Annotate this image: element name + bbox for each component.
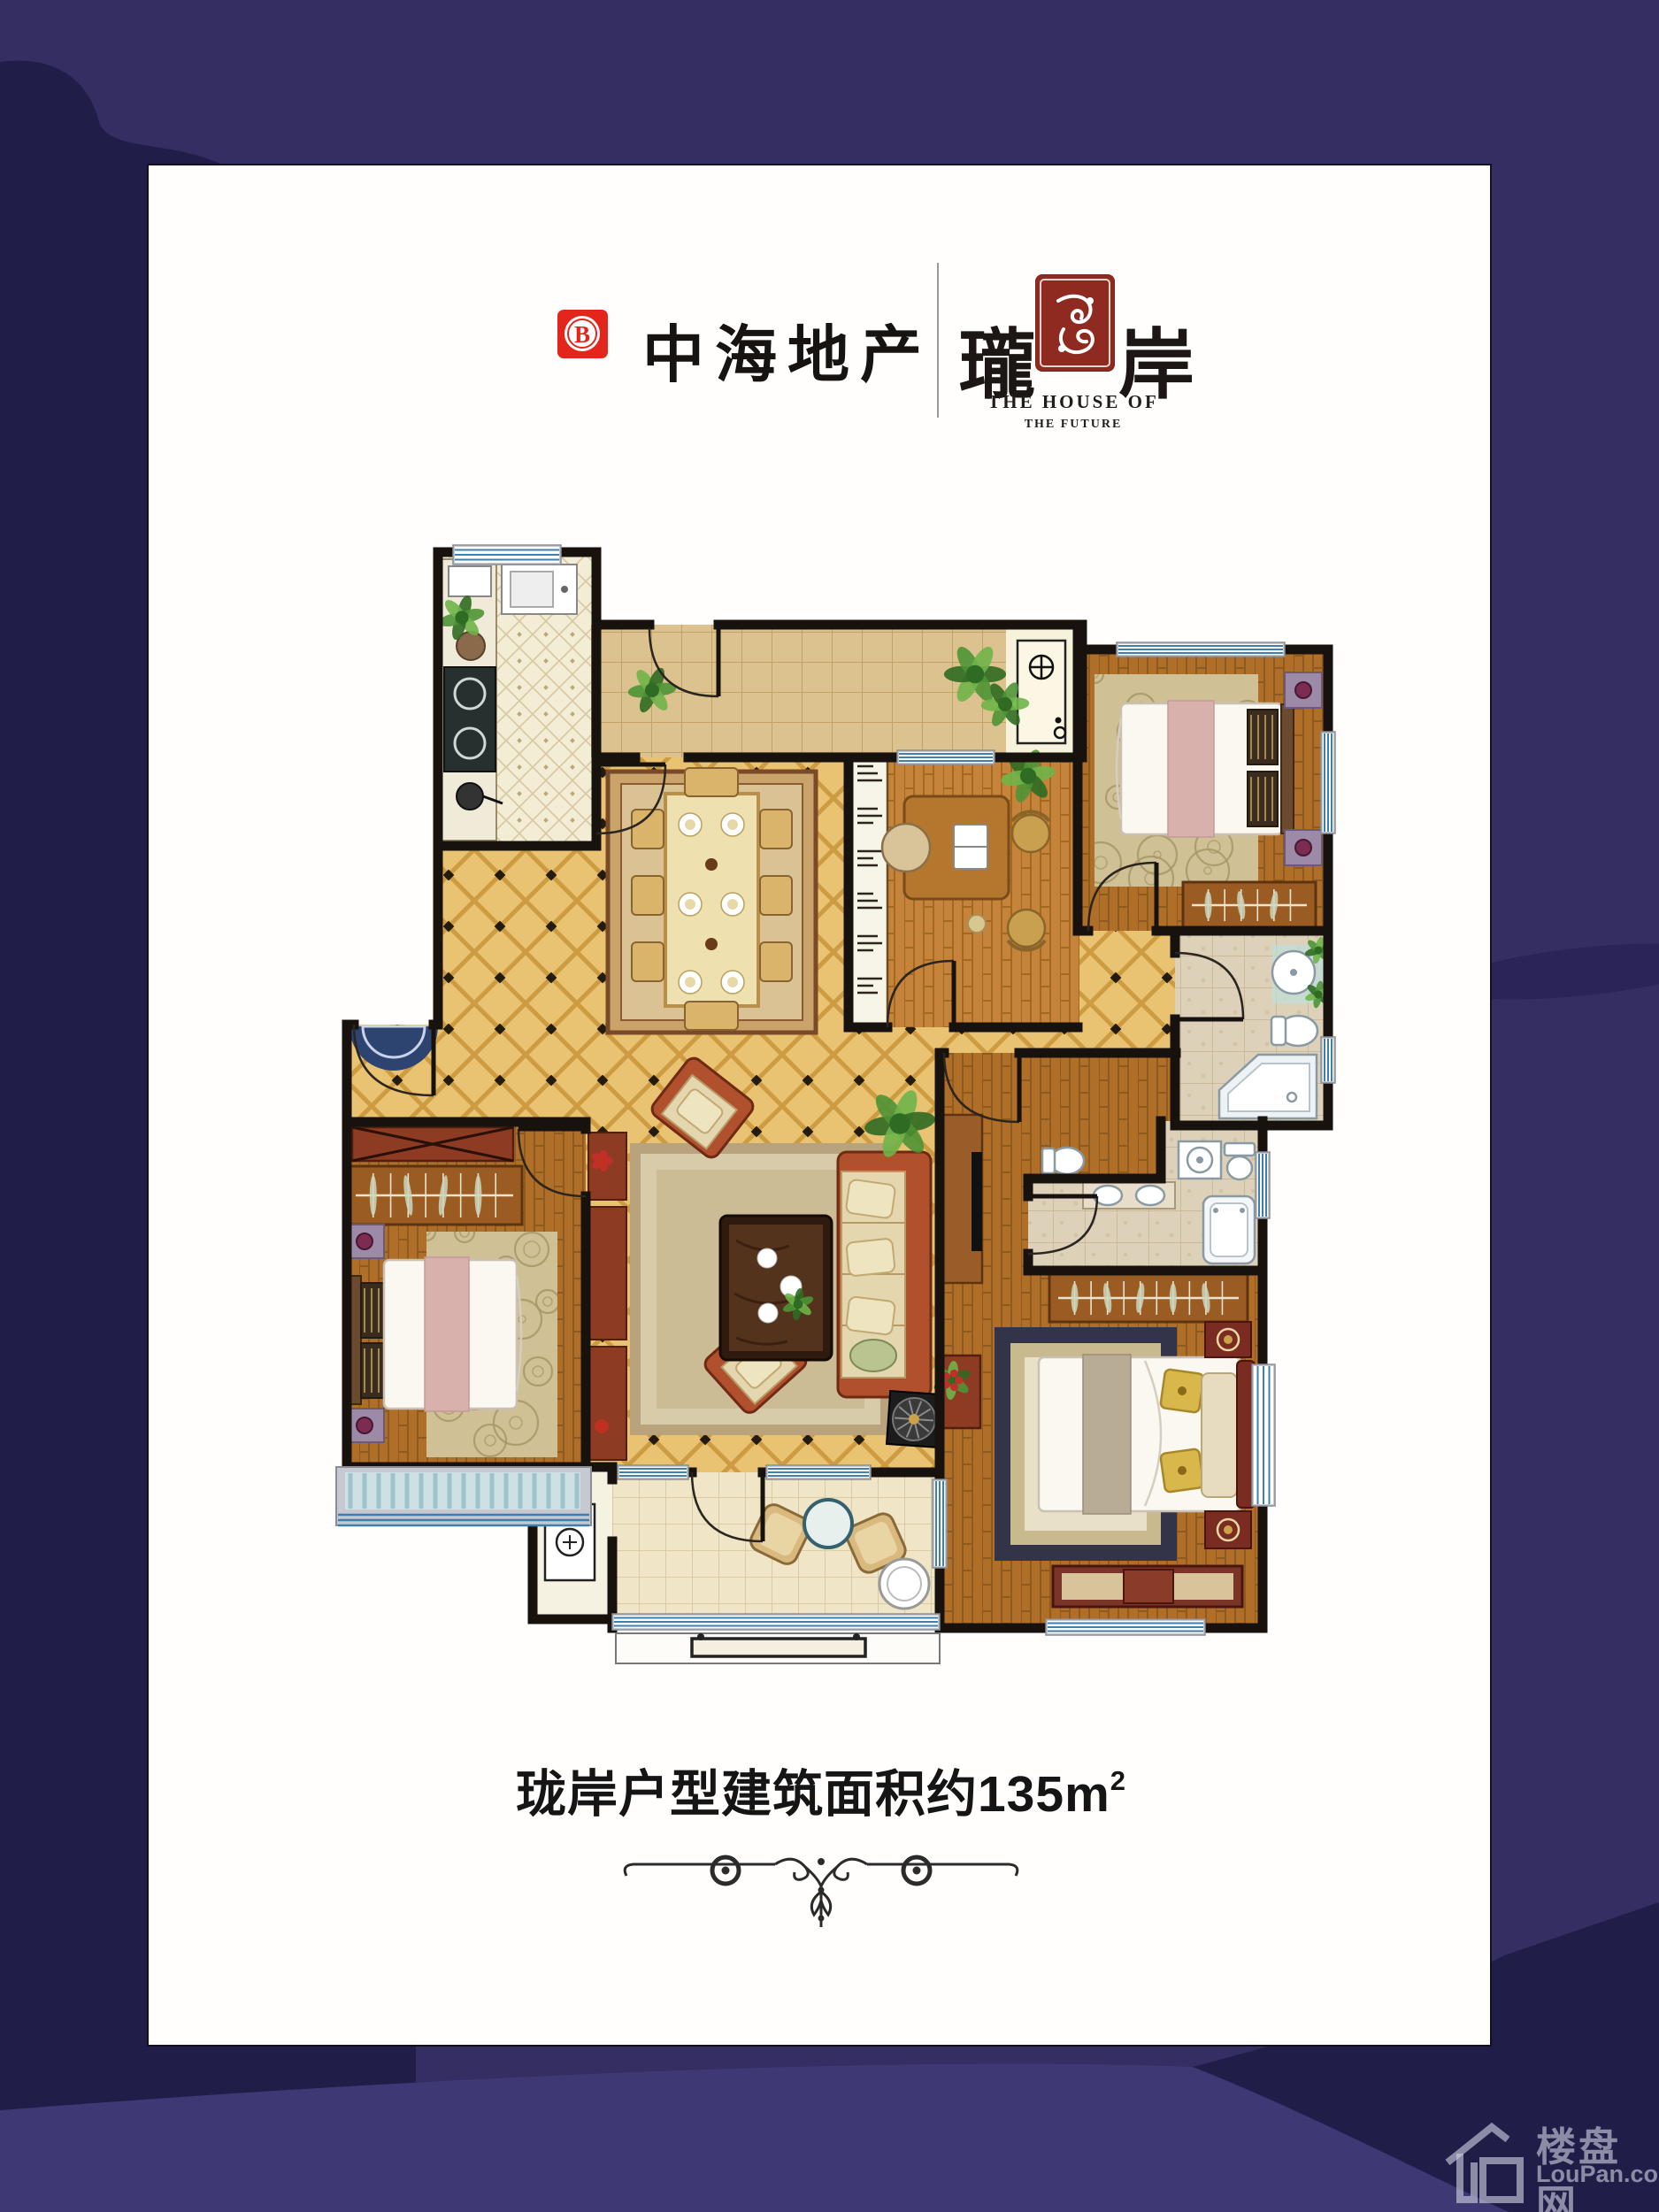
seal-ornament-icon [1035, 274, 1115, 372]
tagline-line2: THE FUTURE [954, 418, 1193, 432]
watermark-name-en: LouPan.com [1536, 2161, 1659, 2188]
caption-area-number: 135 [978, 1766, 1064, 1823]
floor-plan [320, 541, 1356, 1692]
entry-cell-door [1018, 641, 1065, 743]
tagline-line1: THE HOUSE OF [954, 391, 1193, 413]
product-seal [1035, 274, 1115, 372]
area-caption: 珑岸户型建筑面积约135m2 [149, 1754, 1494, 1826]
caption-area-exponent: 2 [1110, 1765, 1126, 1796]
poster-card: B 中海地产 瓏 岸 THE HOUSE OF THE FUTURE [147, 164, 1492, 2047]
poster: B 中海地产 瓏 岸 THE HOUSE OF THE FUTURE [0, 0, 1659, 2212]
watermark-house-icon [1440, 2116, 1529, 2205]
developer-logo-icon: B [557, 310, 608, 358]
bedroom1-furniture [345, 1127, 522, 1442]
flourish-divider [618, 1851, 1025, 1939]
caption-prefix: 珑岸户型建筑面积约 [516, 1766, 978, 1823]
caption-area-unit: m [1064, 1766, 1110, 1823]
product-logo: 瓏 岸 THE HOUSE OF THE FUTURE [954, 289, 1334, 555]
header: B 中海地产 瓏 岸 THE HOUSE OF THE FUTURE [149, 289, 1494, 572]
brand-name: 中海地产 [642, 305, 934, 395]
header-divider [937, 263, 939, 418]
svg-text:B: B [574, 321, 590, 348]
watermark: 楼盘网 LouPan.com [1440, 2115, 1659, 2212]
developer-logo: B [557, 310, 608, 358]
